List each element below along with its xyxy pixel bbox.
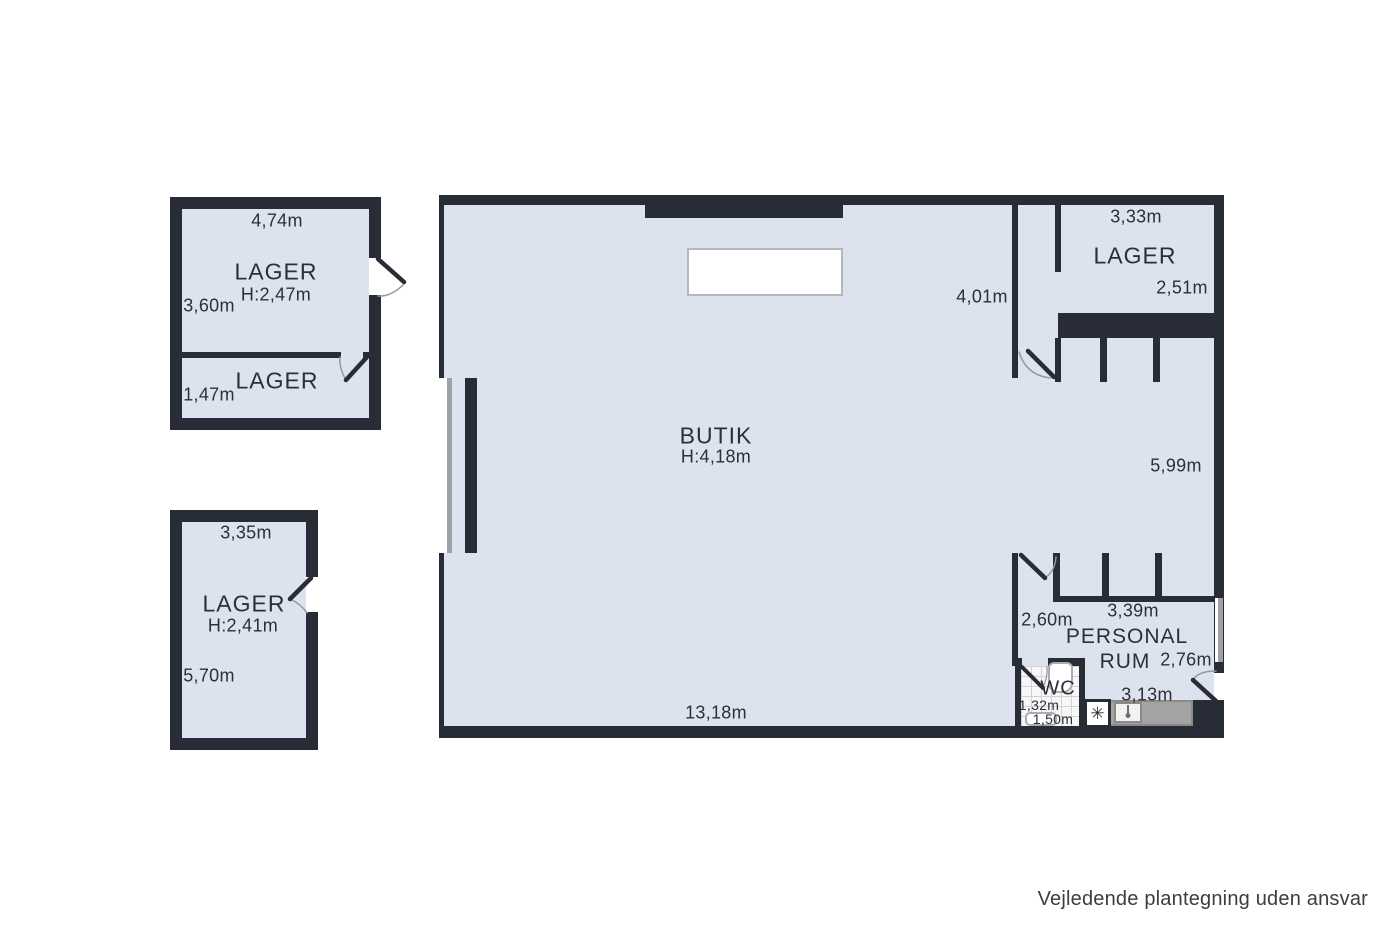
rack-stub [1100, 338, 1107, 382]
dim-label: 3,39m [1107, 601, 1159, 622]
shop-counter [687, 248, 843, 296]
dim-label: 3,13m [1121, 685, 1173, 706]
wall [170, 738, 318, 750]
dim-label: 1,47m [183, 385, 235, 406]
room-label: LAGER [203, 591, 286, 618]
dim-label: 3,60m [183, 296, 235, 317]
freezer-icon: ✳ [1090, 704, 1104, 724]
wall [170, 418, 381, 430]
drain-icon [1126, 713, 1131, 718]
disclaimer-text: Vejledende plantegning uden ansvar [1038, 888, 1368, 911]
room-label: LAGER [1094, 243, 1177, 270]
dim-label: 4,74m [251, 211, 303, 232]
wall [170, 197, 182, 430]
window [444, 378, 452, 553]
dim-label: 5,70m [183, 666, 235, 687]
wall-divider-nub [363, 352, 369, 358]
door-arc [378, 284, 404, 296]
ceiling-height-label: H:4,18m [681, 447, 751, 468]
room-label: LAGER [236, 368, 319, 395]
room-label: LAGER [235, 259, 318, 286]
door-opening [1214, 673, 1224, 700]
corridor-wall [1012, 205, 1018, 378]
display-wall [465, 378, 477, 553]
dim-label: 1,50m [1033, 711, 1073, 727]
window [1215, 598, 1223, 662]
rack-stub [1153, 338, 1160, 382]
room-label: PERSONAL [1066, 625, 1188, 649]
lager-south-wall [1058, 313, 1214, 338]
wall [170, 510, 318, 522]
floor-plan: 4,74m LAGER H:2,47m 3,60m LAGER 1,47m 3,… [0, 0, 1400, 933]
dim-label: 2,51m [1156, 278, 1208, 299]
wc-door-opening [1022, 658, 1048, 666]
rack-stub [1155, 553, 1162, 596]
window-pane [1215, 598, 1218, 662]
door-opening [306, 577, 318, 612]
partition-stub [1053, 553, 1060, 602]
door-opening [369, 258, 381, 295]
dim-label: 5,99m [1150, 456, 1202, 477]
room-label: RUM [1100, 650, 1151, 674]
corridor-wall [1055, 205, 1061, 272]
wall [306, 510, 318, 750]
wall [369, 197, 381, 430]
corridor-wall [1055, 338, 1061, 382]
freezer: ✳ [1084, 699, 1111, 728]
window-pane [444, 378, 447, 553]
door-leaf [378, 259, 404, 282]
dim-label: 3,35m [220, 523, 272, 544]
dim-label: 13,18m [685, 703, 747, 724]
room-label: BUTIK [680, 423, 753, 450]
dim-label: 4,01m [956, 287, 1008, 308]
dim-label: 3,33m [1110, 207, 1162, 228]
dim-label: 2,76m [1160, 650, 1212, 671]
wall-thick-top [645, 195, 843, 218]
wall [170, 197, 381, 209]
corner-block [1193, 700, 1224, 738]
wall [170, 510, 182, 750]
rack-stub [1102, 553, 1109, 596]
personalrum-west-wall [1012, 553, 1018, 666]
wall-divider [182, 352, 341, 358]
ceiling-height-label: H:2,41m [208, 616, 278, 637]
ceiling-height-label: H:2,47m [241, 285, 311, 306]
